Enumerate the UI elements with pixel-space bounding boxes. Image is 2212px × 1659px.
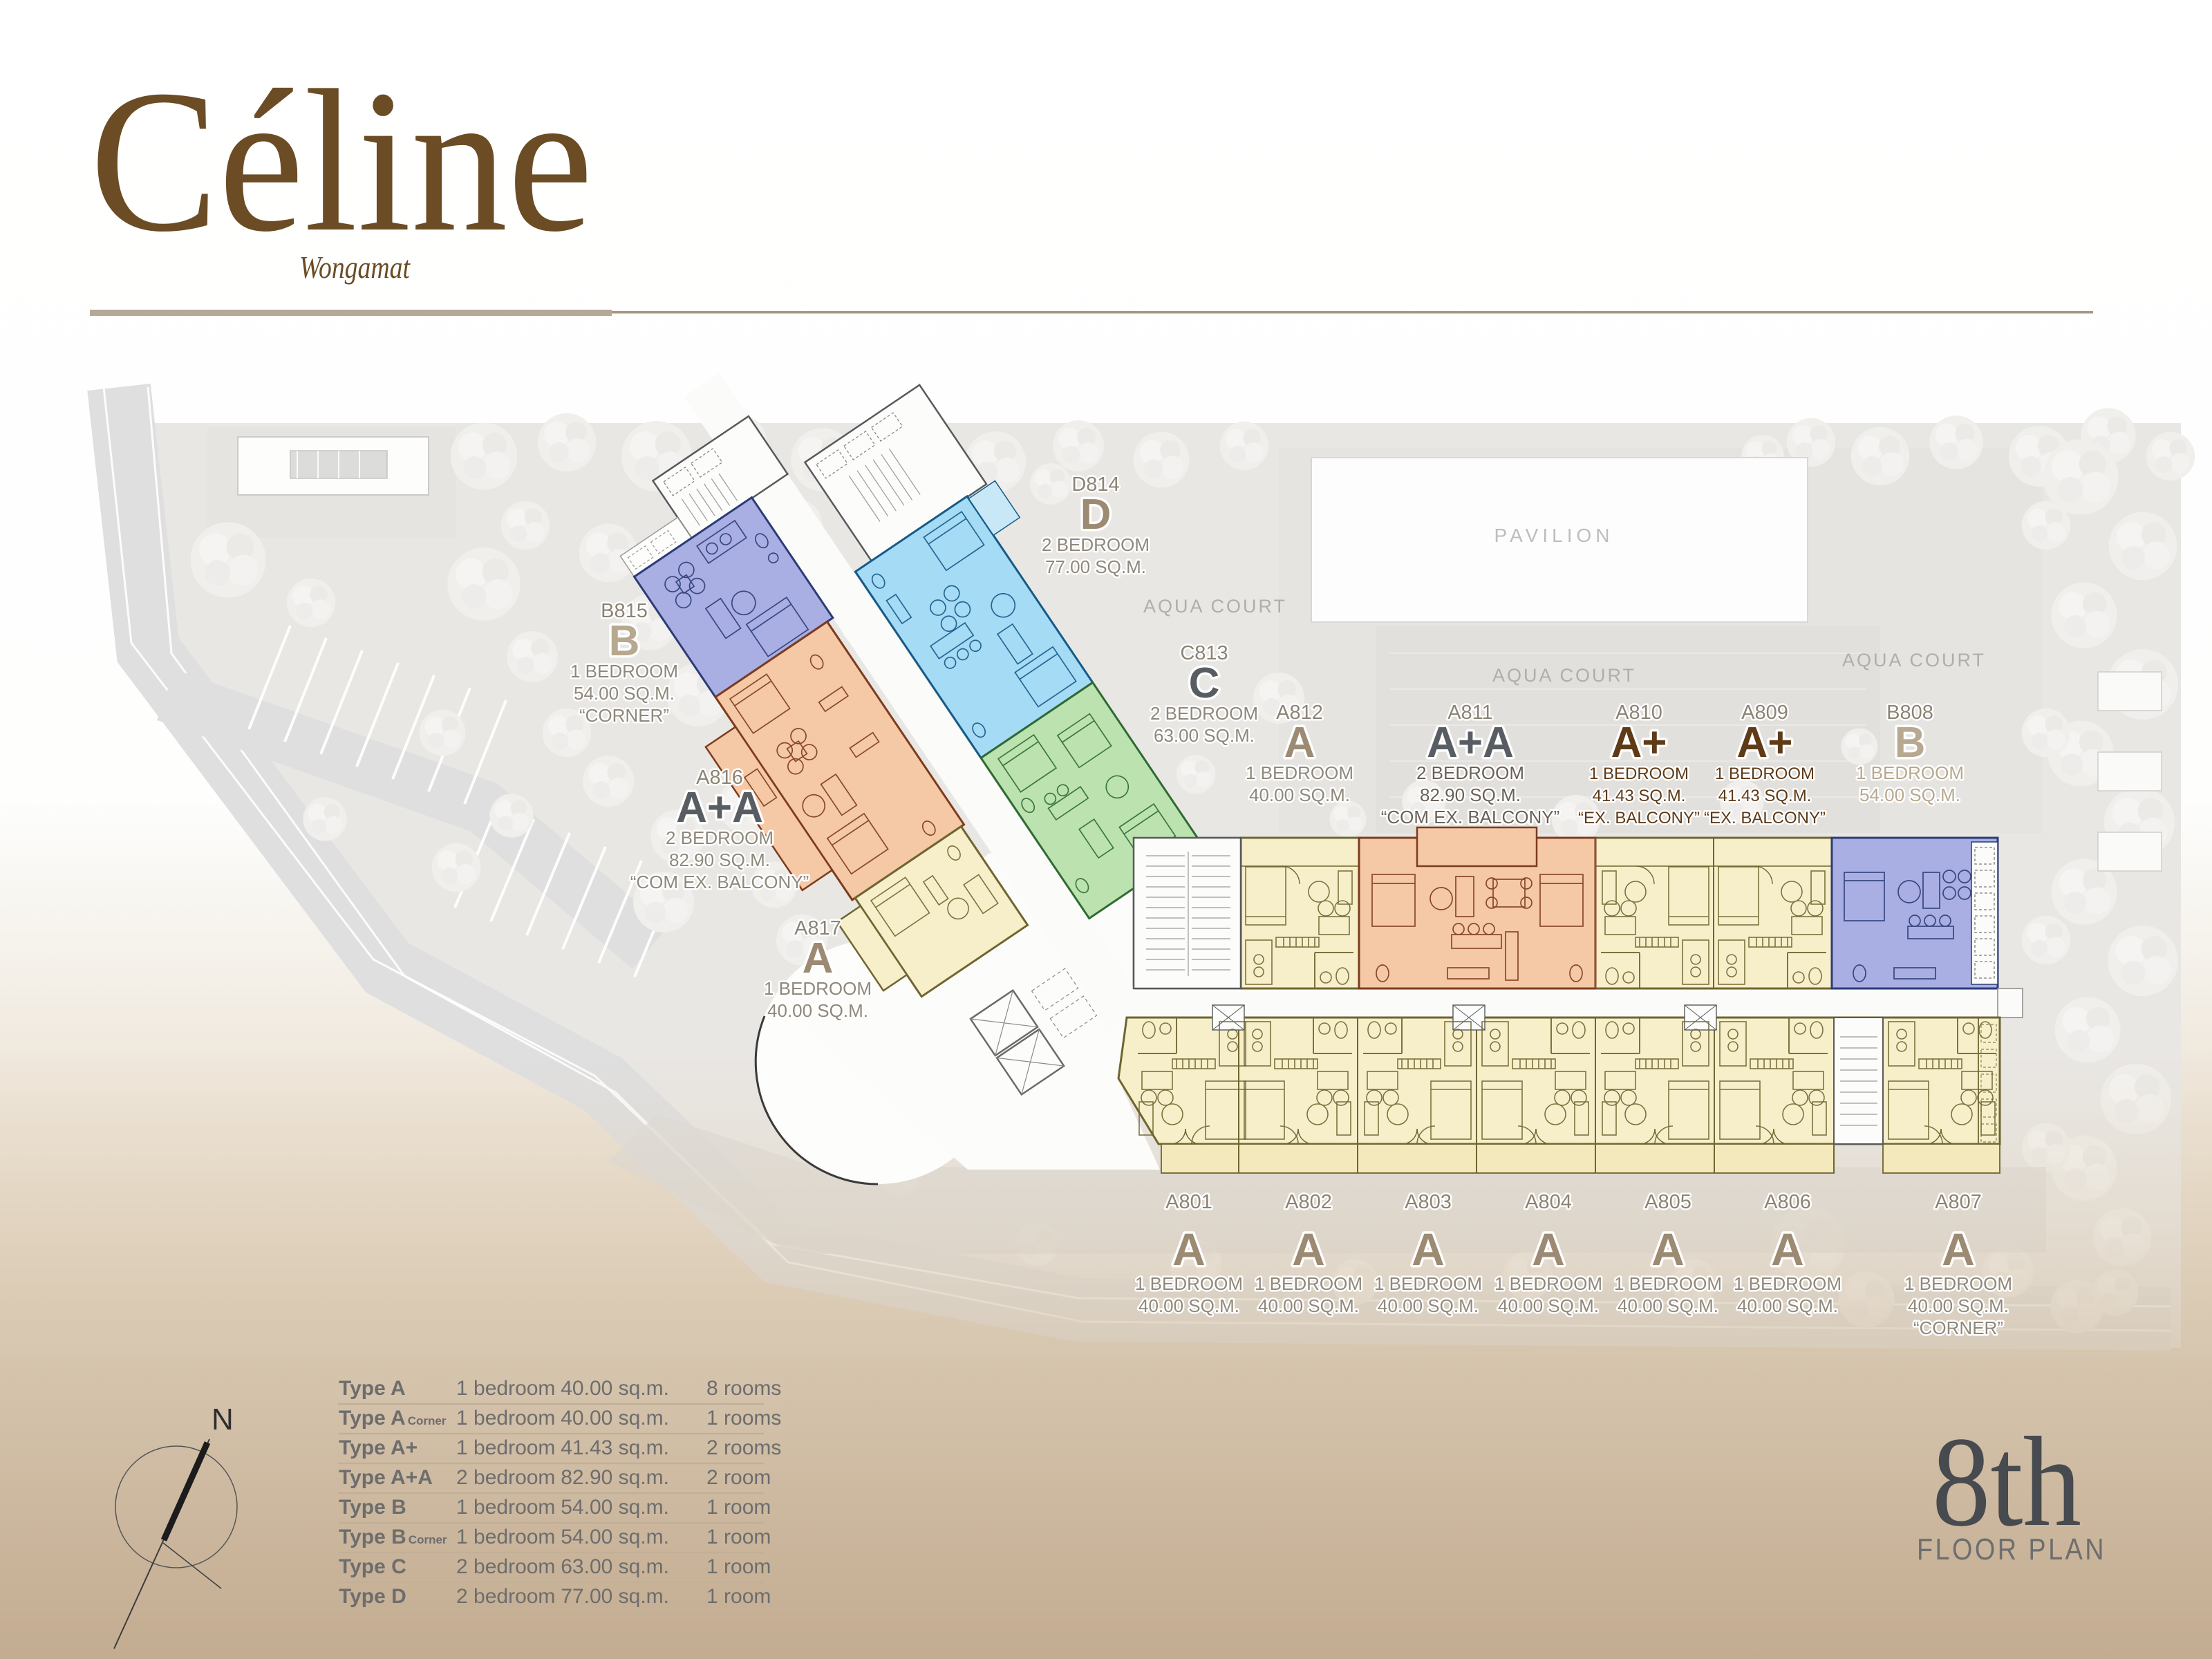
svg-text:A+A: A+A xyxy=(676,784,763,832)
svg-text:1 BEDROOM: 1 BEDROOM xyxy=(1856,762,1964,783)
svg-text:1 BEDROOM: 1 BEDROOM xyxy=(1494,1273,1602,1294)
svg-text:77.00 sq.m.: 77.00 sq.m. xyxy=(561,1585,669,1608)
svg-text:1 BEDROOM: 1 BEDROOM xyxy=(570,661,678,682)
svg-text:2 BEDROOM: 2 BEDROOM xyxy=(666,827,774,848)
svg-text:A: A xyxy=(1532,1224,1565,1275)
svg-text:41.43 SQ.M.: 41.43 SQ.M. xyxy=(1593,787,1686,805)
svg-text:B: B xyxy=(609,617,640,665)
svg-text:1 room: 1 room xyxy=(706,1555,771,1578)
svg-text:B: B xyxy=(1895,719,1926,767)
svg-text:1 BEDROOM: 1 BEDROOM xyxy=(1734,1273,1841,1294)
svg-text:8 rooms: 8 rooms xyxy=(706,1377,781,1400)
svg-text:A: A xyxy=(1172,1224,1206,1275)
svg-text:A: A xyxy=(1651,1224,1685,1275)
svg-text:A806: A806 xyxy=(1764,1191,1811,1213)
svg-text:Type D: Type D xyxy=(339,1585,406,1608)
svg-text:40.00 SQ.M.: 40.00 SQ.M. xyxy=(1737,1295,1838,1316)
svg-text:40.00 SQ.M.: 40.00 SQ.M. xyxy=(1908,1295,2009,1316)
svg-text:“COM EX. BALCONY”: “COM EX. BALCONY” xyxy=(630,872,809,892)
svg-text:40.00 SQ.M.: 40.00 SQ.M. xyxy=(1378,1295,1479,1316)
svg-text:40.00 SQ.M.: 40.00 SQ.M. xyxy=(1249,785,1350,805)
svg-text:63.00 SQ.M.: 63.00 SQ.M. xyxy=(1154,725,1255,746)
svg-text:2 bedroom: 2 bedroom xyxy=(456,1555,555,1578)
svg-text:1 BEDROOM: 1 BEDROOM xyxy=(764,978,872,999)
svg-text:Type A: Type A xyxy=(339,1377,406,1400)
svg-text:2 BEDROOM: 2 BEDROOM xyxy=(1042,534,1150,555)
svg-text:A807: A807 xyxy=(1935,1191,1982,1213)
svg-text:“CORNER”: “CORNER” xyxy=(579,705,669,726)
svg-text:A803: A803 xyxy=(1405,1191,1452,1213)
svg-text:1 bedroom: 1 bedroom xyxy=(456,1496,555,1519)
svg-text:A: A xyxy=(1284,719,1315,767)
svg-text:“CORNER”: “CORNER” xyxy=(1913,1318,2003,1338)
svg-text:C: C xyxy=(1189,659,1220,707)
svg-text:40.00 SQ.M.: 40.00 SQ.M. xyxy=(1138,1295,1239,1316)
svg-text:A+: A+ xyxy=(1737,719,1793,767)
svg-text:82.90 sq.m.: 82.90 sq.m. xyxy=(561,1466,669,1489)
svg-text:82.90 SQ.M.: 82.90 SQ.M. xyxy=(1420,785,1521,805)
svg-text:2 rooms: 2 rooms xyxy=(706,1436,781,1459)
svg-text:A802: A802 xyxy=(1285,1191,1332,1213)
svg-text:54.00 SQ.M.: 54.00 SQ.M. xyxy=(574,683,675,704)
svg-text:A+A: A+A xyxy=(1427,719,1514,767)
svg-text:Type A+A: Type A+A xyxy=(339,1466,433,1489)
svg-text:1 bedroom: 1 bedroom xyxy=(456,1407,555,1430)
svg-text:A: A xyxy=(803,935,834,982)
svg-text:2 bedroom: 2 bedroom xyxy=(456,1585,555,1608)
svg-text:40.00 SQ.M.: 40.00 SQ.M. xyxy=(1498,1295,1599,1316)
svg-text:1 BEDROOM: 1 BEDROOM xyxy=(1374,1273,1482,1294)
svg-text:A: A xyxy=(1412,1224,1445,1275)
svg-text:Type B: Type B xyxy=(339,1496,406,1519)
svg-text:Wongamat: Wongamat xyxy=(299,250,411,285)
svg-text:1 bedroom: 1 bedroom xyxy=(456,1436,555,1459)
svg-text:40.00 sq.m.: 40.00 sq.m. xyxy=(561,1377,669,1400)
svg-text:A+: A+ xyxy=(1611,719,1667,767)
svg-text:“EX. BALCONY”: “EX. BALCONY” xyxy=(1578,809,1700,827)
svg-text:40.00 sq.m.: 40.00 sq.m. xyxy=(561,1407,669,1430)
svg-text:A: A xyxy=(1292,1224,1325,1275)
svg-text:1 bedroom: 1 bedroom xyxy=(456,1377,555,1400)
svg-text:1 BEDROOM: 1 BEDROOM xyxy=(1904,1273,2012,1294)
svg-text:Type A+: Type A+ xyxy=(339,1436,418,1459)
svg-text:1 BEDROOM: 1 BEDROOM xyxy=(1589,765,1689,783)
svg-text:54.00 sq.m.: 54.00 sq.m. xyxy=(561,1526,669,1548)
svg-text:1 BEDROOM: 1 BEDROOM xyxy=(1715,765,1815,783)
svg-text:N: N xyxy=(212,1403,234,1436)
svg-text:82.90 SQ.M.: 82.90 SQ.M. xyxy=(669,850,770,870)
svg-text:“COM EX. BALCONY”: “COM EX. BALCONY” xyxy=(1381,807,1560,827)
svg-text:77.00 SQ.M.: 77.00 SQ.M. xyxy=(1045,556,1146,577)
svg-text:41.43 SQ.M.: 41.43 SQ.M. xyxy=(1718,787,1812,805)
svg-text:D: D xyxy=(1080,491,1112,538)
svg-text:40.00 SQ.M.: 40.00 SQ.M. xyxy=(767,1000,868,1021)
svg-text:Céline: Céline xyxy=(90,48,593,274)
svg-text:A805: A805 xyxy=(1644,1191,1691,1213)
svg-text:2 room: 2 room xyxy=(706,1466,771,1489)
svg-text:40.00 SQ.M.: 40.00 SQ.M. xyxy=(1258,1295,1359,1316)
svg-text:54.00 sq.m.: 54.00 sq.m. xyxy=(561,1496,669,1519)
svg-text:41.43 sq.m.: 41.43 sq.m. xyxy=(561,1436,669,1459)
svg-text:40.00 SQ.M.: 40.00 SQ.M. xyxy=(1618,1295,1718,1316)
svg-text:A804: A804 xyxy=(1525,1191,1572,1213)
svg-text:1 bedroom: 1 bedroom xyxy=(456,1526,555,1548)
svg-text:54.00 SQ.M.: 54.00 SQ.M. xyxy=(1859,785,1960,805)
svg-text:2 BEDROOM: 2 BEDROOM xyxy=(1150,703,1258,724)
svg-text:1 room: 1 room xyxy=(706,1526,771,1548)
svg-text:1 BEDROOM: 1 BEDROOM xyxy=(1614,1273,1722,1294)
svg-text:A: A xyxy=(1942,1224,1975,1275)
svg-text:2 BEDROOM: 2 BEDROOM xyxy=(1416,762,1524,783)
svg-text:1 rooms: 1 rooms xyxy=(706,1407,781,1430)
svg-text:1 room: 1 room xyxy=(706,1496,771,1519)
svg-text:2 bedroom: 2 bedroom xyxy=(456,1466,555,1489)
svg-text:63.00 sq.m.: 63.00 sq.m. xyxy=(561,1555,669,1578)
svg-text:A: A xyxy=(1771,1224,1804,1275)
svg-text:Type C: Type C xyxy=(339,1555,406,1578)
svg-text:1 BEDROOM: 1 BEDROOM xyxy=(1135,1273,1243,1294)
svg-text:1 BEDROOM: 1 BEDROOM xyxy=(1255,1273,1362,1294)
svg-text:FLOOR PLAN: FLOOR PLAN xyxy=(1917,1533,2106,1566)
svg-text:1 room: 1 room xyxy=(706,1585,771,1608)
svg-text:1 BEDROOM: 1 BEDROOM xyxy=(1246,762,1353,783)
svg-text:A801: A801 xyxy=(1165,1191,1212,1213)
svg-text:“EX. BALCONY”: “EX. BALCONY” xyxy=(1704,809,1826,827)
